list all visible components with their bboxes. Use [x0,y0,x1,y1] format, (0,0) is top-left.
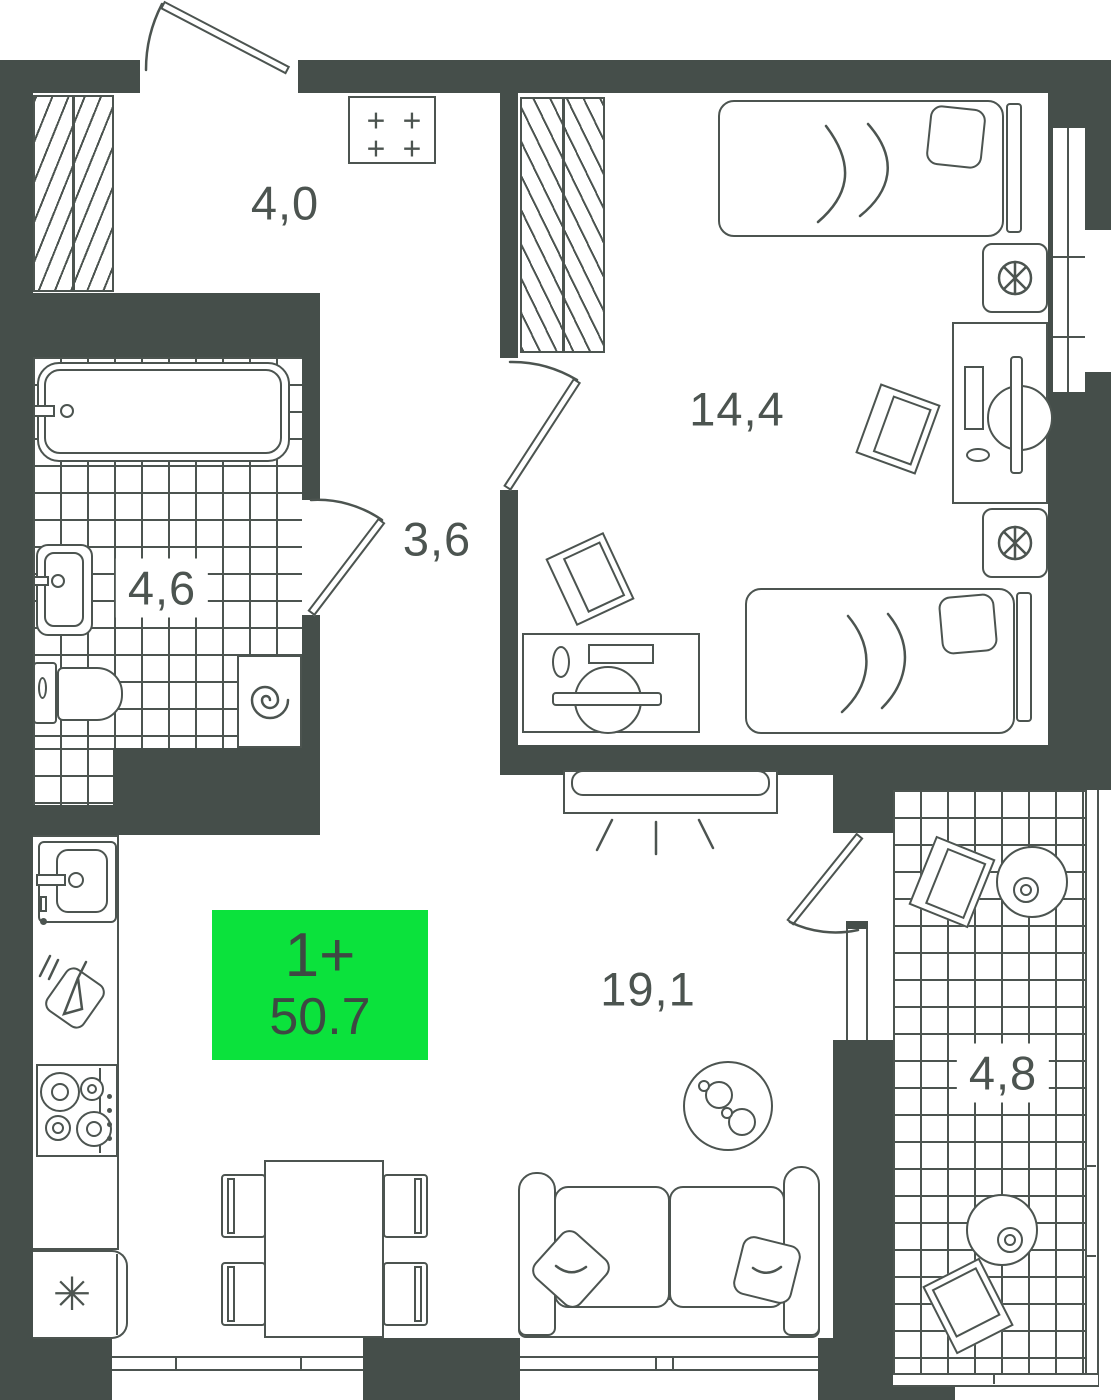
glazing-tick [1087,1165,1096,1167]
bathtub-faucet-knob [60,404,74,418]
bedroom-door-arc [510,362,577,380]
wall-left [0,60,33,1400]
bathroom-door-arc [311,500,382,520]
desk2-drawer [588,644,654,664]
room-label-corridor: 3,6 [403,512,471,567]
balcony-glazing-right [1085,790,1099,1387]
cup-inner [1004,1234,1016,1246]
cup-inner [1020,884,1032,896]
bedroom-door-leaf [503,377,581,490]
wall-top-main [298,60,1048,93]
bedroom-window-frame-line [1067,128,1069,392]
room-label-hall: 4,0 [251,176,319,231]
wall-bedroom-left-lower [500,490,518,745]
tv-icon [571,770,770,796]
plus-mark-icon: + [403,131,422,168]
wall-bathroom-bottom [113,748,302,805]
bed-bottom-pillow [938,593,999,656]
unit-badge: 1+ 50.7 [212,910,428,1060]
desk-drawer [964,366,984,430]
wall-right-below-window [1048,392,1111,790]
plus-mark-icon: + [367,131,386,168]
room-label-balcony: 4,8 [957,1044,1049,1103]
unit-type-label: 1+ [285,924,356,988]
entrance-door-leaf [160,0,290,74]
bedroom-chair-icon [545,532,634,626]
snowflake-icon: ✳ [53,1267,92,1321]
window-tick [300,1356,302,1369]
bathroom-sink-basin [44,552,84,627]
burner-inner [51,1083,69,1101]
wall-bathroom-right-lower [302,615,320,835]
cup-handle [721,1107,733,1119]
dining-table-icon [264,1160,384,1338]
wall-balcony-pier [833,745,893,833]
washing-machine-icon [237,655,302,748]
window-frame-line [520,1369,818,1371]
bathtub-faucet-icon [33,405,55,417]
desk2-item-oval [552,646,570,678]
wall-bathroom-top [33,293,320,357]
hall-wardrobe-icon [33,95,114,292]
wall-bedroom-left-upper [500,93,518,358]
desk2-chair-back [552,692,662,706]
toilet-tank-icon [33,662,57,724]
toilet-button [38,677,47,699]
bedroom-window-tick [1053,256,1085,258]
room-label-bathroom: 4,6 [116,559,208,618]
bedroom-wardrobe-icon [520,97,605,353]
chair-back [414,1178,422,1234]
wall-balcony-window-cap [846,921,868,929]
dining-chair-icon [221,1174,266,1238]
bathtub-icon [37,362,290,462]
wardrobe-divider [72,97,75,290]
fridge-door-line [116,1254,119,1335]
bedroom-window [1053,128,1085,392]
stove-knob-dot [107,1108,112,1113]
bathroom-door-leaf [307,517,385,616]
wall-balcony-top [893,745,1111,790]
bed-bottom-headboard [1016,592,1032,722]
stove-knob-dot [107,1136,112,1141]
wall-balcony-lower [833,1040,893,1400]
utility-box-icon [348,96,436,164]
wall-kitchen-top [0,805,320,835]
wall-right-outer-lower [1085,372,1111,392]
glazing-tick [1087,1255,1096,1257]
nightstand-icon [982,508,1048,578]
coffee-table-icon [683,1061,773,1151]
desk-chair-back [1010,356,1023,474]
sink-faucet-knob [51,574,65,588]
room-label-living: 19,1 [600,962,695,1017]
stove-knob-dot [107,1094,112,1099]
bed-top-pillow [925,104,987,170]
bathroom-sink-icon [36,544,93,636]
chair-back [227,1178,235,1234]
wall-top-right-corner [1048,60,1111,128]
cup-handle [698,1080,710,1092]
wardrobe-divider [562,99,565,351]
stove-knob-dot [107,1122,112,1127]
wall-right-outer-upper [1085,128,1111,230]
balcony-door-leaf [786,832,863,925]
desk-item-oval [966,448,990,462]
kitchen-faucet-knob [68,872,84,888]
nightstand-icon [982,243,1048,313]
balcony-glazing-bottom [893,1373,1098,1387]
bed-top-headboard [1006,103,1022,233]
tv-rays [597,820,713,854]
balcony-wall-window [846,929,868,1040]
unit-area-label: 50.7 [269,988,370,1046]
window-tick [655,1356,657,1369]
chair-back [227,1266,235,1322]
chair-seat [873,395,932,465]
chair-seat [563,541,626,613]
room-label-bedroom: 14,4 [689,382,784,437]
bottom-window-living [520,1338,818,1400]
bedroom-window-tick [1053,336,1085,338]
burner-inner [87,1084,97,1094]
kitchen-faucet-tick [40,896,47,912]
chair-back [414,1266,422,1322]
entrance-door-arc [146,4,162,70]
burner-inner [86,1121,102,1137]
dining-chair-icon [221,1262,266,1326]
wall-bathroom-right-upper [302,357,320,500]
burner-inner [52,1122,64,1134]
glazing-tick [993,1375,995,1384]
bathtub-inner [44,369,282,454]
window-tick [672,1356,674,1369]
bottom-window-kitchen [112,1338,363,1400]
floor-plan: + + + + [0,0,1111,1400]
kitchen-faucet-dot [40,918,47,925]
bathroom-floor-tiles-notch [33,748,113,805]
window-frame-line [112,1369,363,1371]
window-frame-line [112,1356,363,1358]
dining-chair-icon [383,1262,428,1326]
window-frame-line [520,1356,818,1358]
toilet-bowl-icon [57,667,123,721]
bedroom-chair-icon [855,383,940,474]
sink-faucet-icon [33,576,49,586]
kitchen-faucet-icon [36,874,66,886]
dining-chair-icon [383,1174,428,1238]
window-tick [175,1356,177,1369]
